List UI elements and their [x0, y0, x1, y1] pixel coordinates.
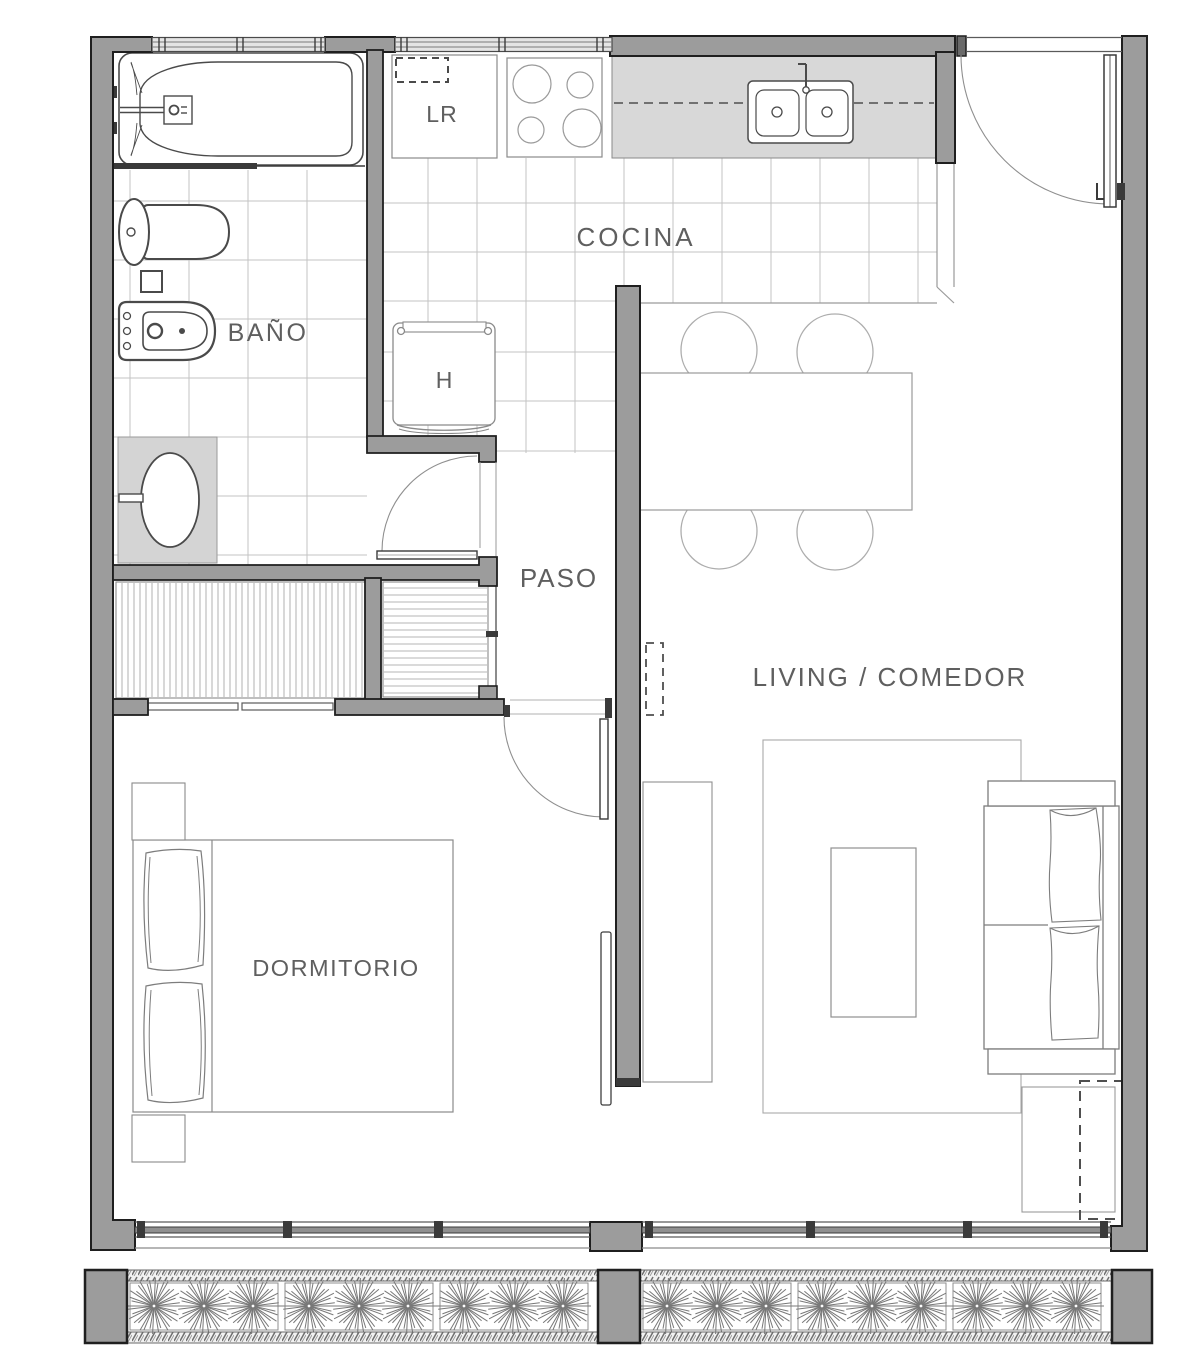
svg-text:LR: LR: [426, 101, 457, 127]
svg-text:H: H: [436, 367, 453, 393]
svg-text:DORMITORIO: DORMITORIO: [252, 955, 419, 981]
svg-text:LIVING / COMEDOR: LIVING / COMEDOR: [753, 662, 1028, 692]
svg-text:COCINA: COCINA: [576, 222, 695, 252]
svg-text:PASO: PASO: [520, 563, 598, 593]
svg-text:BAÑO: BAÑO: [228, 318, 309, 347]
